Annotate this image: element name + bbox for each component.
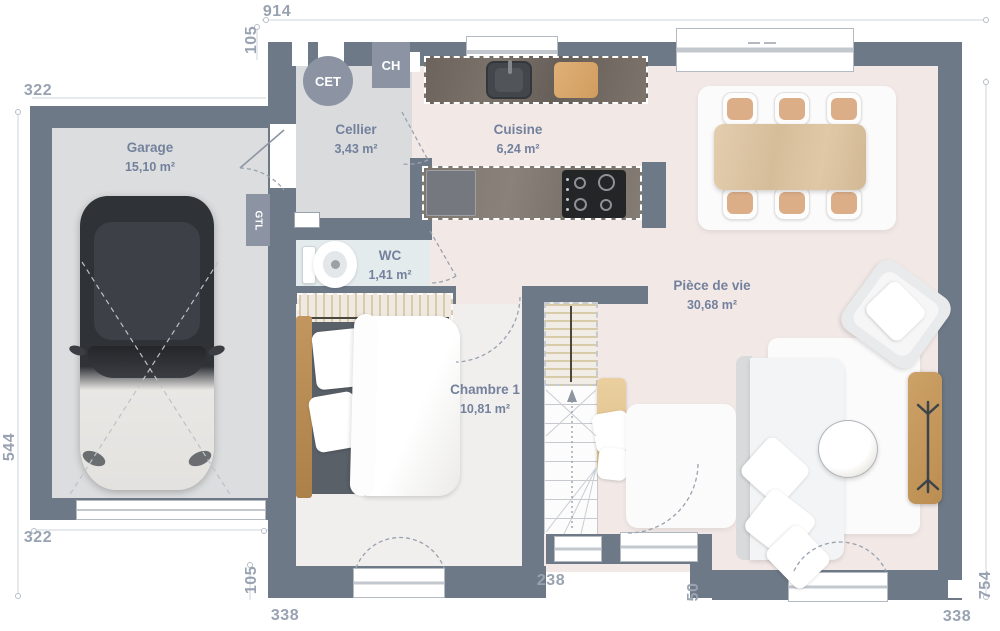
room-area: 3,43 m² bbox=[334, 140, 377, 158]
room-area: 10,81 m² bbox=[450, 400, 520, 418]
car-roof bbox=[94, 222, 200, 340]
dining-chair bbox=[826, 92, 862, 126]
room-label-cuisine: Cuisine 6,24 m² bbox=[494, 120, 543, 158]
tv-console bbox=[908, 372, 942, 504]
room-area: 1,41 m² bbox=[368, 266, 411, 284]
stairs-closet bbox=[544, 302, 598, 386]
room-label-piece-de-vie: Pièce de vie 30,68 m² bbox=[673, 276, 750, 314]
room-name: Cellier bbox=[334, 120, 377, 140]
room-name: Pièce de vie bbox=[673, 276, 750, 296]
room-area: 30,68 m² bbox=[673, 296, 750, 314]
wall-notch-corner bbox=[948, 580, 964, 598]
cutting-board bbox=[554, 62, 598, 98]
appliance bbox=[426, 170, 476, 216]
gtl-label: GTL bbox=[253, 210, 264, 230]
room-name: Chambre 1 bbox=[450, 380, 520, 400]
window-living-top bbox=[676, 28, 854, 72]
dim-top-width: 914 bbox=[263, 3, 291, 21]
room-label-wc: WC 1,41 m² bbox=[368, 246, 411, 284]
room-area: 15,10 m² bbox=[125, 158, 175, 176]
dim-entry-offset: 50 bbox=[685, 583, 703, 602]
dim-living-width: 338 bbox=[943, 608, 971, 626]
stove-knob bbox=[566, 188, 569, 191]
dim-living-depth: 754 bbox=[977, 571, 995, 599]
dining-chair bbox=[826, 186, 862, 220]
dim-bedroom-width: 338 bbox=[271, 607, 299, 625]
stairs bbox=[544, 385, 598, 534]
water-heater-cet: CET bbox=[303, 56, 353, 106]
room-name: Cuisine bbox=[494, 120, 543, 140]
toilet-bowl bbox=[313, 241, 357, 288]
floor-plan: CET CH GTL bbox=[0, 0, 1000, 631]
burner bbox=[598, 174, 615, 191]
bench-cushion bbox=[596, 447, 629, 482]
window-bedroom bbox=[353, 568, 445, 598]
car-windshield bbox=[88, 346, 206, 378]
burner bbox=[600, 199, 612, 211]
chair-seat bbox=[727, 192, 753, 214]
cet-label: CET bbox=[315, 74, 341, 89]
entry-rug bbox=[626, 404, 736, 528]
burner bbox=[574, 177, 586, 189]
ch-label: CH bbox=[382, 58, 401, 73]
dim-stairs-window-width: 238 bbox=[537, 572, 565, 590]
dining-chair bbox=[722, 186, 758, 220]
room-label-chambre: Chambre 1 10,81 m² bbox=[450, 380, 520, 418]
dining-table bbox=[714, 124, 866, 190]
chair-seat bbox=[831, 98, 857, 120]
threshold-cellier bbox=[294, 212, 320, 228]
coffee-table bbox=[818, 420, 878, 478]
stove-knob bbox=[566, 198, 569, 201]
entry-door bbox=[620, 532, 698, 562]
chair-seat bbox=[727, 98, 753, 120]
kitchen-counter-bottom bbox=[422, 166, 642, 220]
garage-door bbox=[76, 500, 266, 520]
dim-garage-width-bottom: 322 bbox=[24, 529, 52, 547]
wall-vent-1 bbox=[292, 34, 308, 66]
stove bbox=[562, 170, 626, 218]
room-name: Garage bbox=[125, 138, 175, 158]
boiler-ch: CH bbox=[372, 42, 410, 88]
burner bbox=[574, 198, 587, 211]
closet-rod bbox=[570, 306, 572, 382]
dim-garage-width-top: 322 bbox=[24, 82, 52, 100]
kitchen-sink bbox=[486, 61, 532, 99]
room-label-cellier: Cellier 3,43 m² bbox=[334, 120, 377, 158]
wall-garage-top bbox=[30, 106, 268, 128]
dining-chair bbox=[722, 92, 758, 126]
door-opening-garage-cellier bbox=[270, 124, 296, 188]
electrical-panel-gtl: GTL bbox=[246, 194, 270, 246]
dim-garage-depth: 544 bbox=[1, 433, 19, 461]
chair-seat bbox=[831, 192, 857, 214]
dim-bottom-left-setback: 105 bbox=[243, 566, 261, 594]
chair-seat bbox=[779, 192, 805, 214]
room-label-garage: Garage 15,10 m² bbox=[125, 138, 175, 176]
stove-knob bbox=[566, 178, 569, 181]
dim-top-setback: 105 bbox=[243, 26, 261, 54]
dining-chair bbox=[774, 186, 810, 220]
room-area: 6,24 m² bbox=[494, 140, 543, 158]
sink-faucet bbox=[508, 60, 512, 74]
window-stairs bbox=[554, 536, 602, 562]
dining-chair bbox=[774, 92, 810, 126]
chair-seat bbox=[779, 98, 805, 120]
wall-garage-left bbox=[30, 106, 52, 520]
stove-knob bbox=[566, 208, 569, 211]
room-name: WC bbox=[368, 246, 411, 266]
car bbox=[80, 196, 214, 490]
bed-duvet-fold bbox=[350, 314, 379, 497]
kitchen-counter-top bbox=[424, 56, 648, 104]
toilet-drain bbox=[331, 260, 340, 269]
wall-bedroom-right bbox=[522, 286, 544, 566]
wall-kitchen-stub bbox=[642, 162, 666, 228]
